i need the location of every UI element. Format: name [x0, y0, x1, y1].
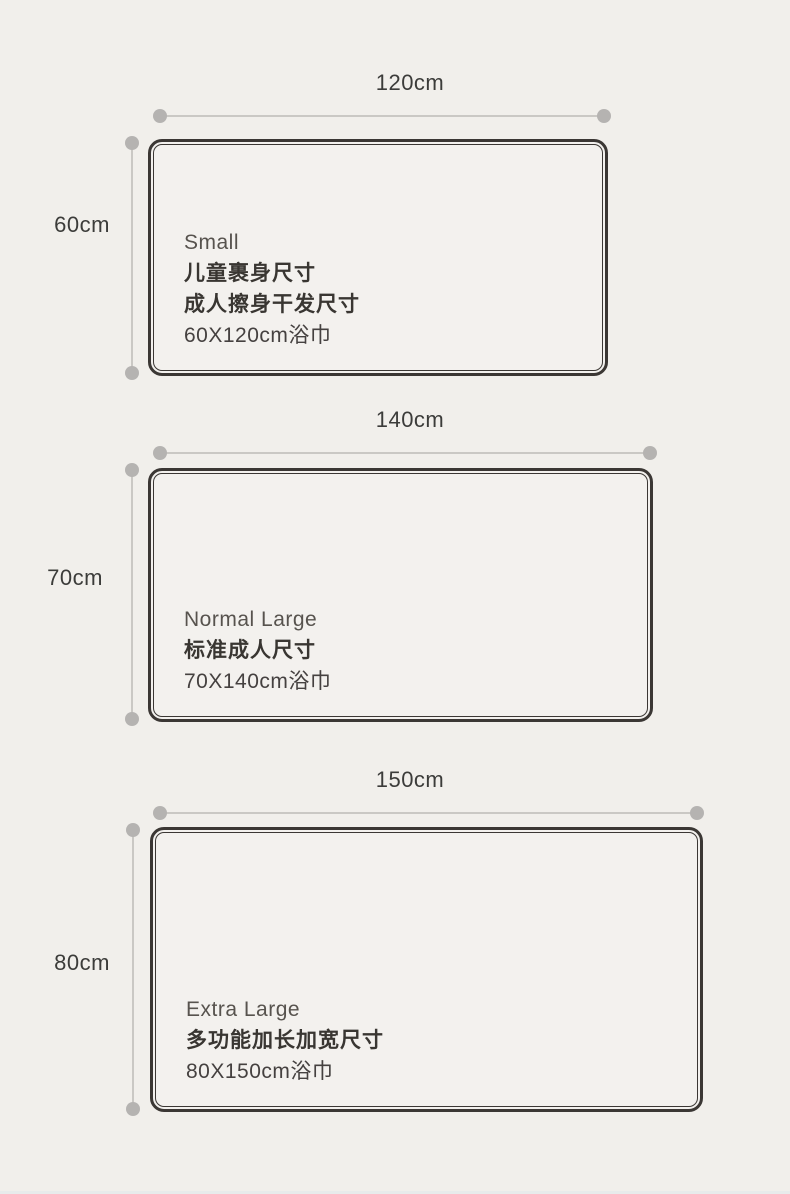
dimension-dot [125, 366, 139, 380]
dimension-dot [125, 463, 139, 477]
towel-size-text: 60X120cm浴巾 [184, 320, 360, 351]
towel-description-line: 标准成人尺寸 [184, 635, 331, 666]
towel-info-normal: Normal Large 标准成人尺寸 70X140cm浴巾 [184, 604, 331, 697]
towel-size-text: 80X150cm浴巾 [186, 1056, 384, 1087]
towel-outline-extra: Extra Large 多功能加长加宽尺寸 80X150cm浴巾 [150, 827, 703, 1112]
height-dimension-line-small [131, 143, 133, 373]
width-dimension-label-small: 120cm [340, 70, 480, 96]
width-dimension-label-extra: 150cm [340, 767, 480, 793]
dimension-dot [126, 823, 140, 837]
towel-outline-small: Small 儿童裹身尺寸 成人擦身干发尺寸 60X120cm浴巾 [148, 139, 608, 376]
width-dimension-line-normal [160, 452, 650, 454]
width-dimension-line-extra [160, 812, 697, 814]
towel-name-en: Small [184, 227, 360, 258]
towel-name-en: Normal Large [184, 604, 331, 635]
towel-outline-normal: Normal Large 标准成人尺寸 70X140cm浴巾 [148, 468, 653, 722]
height-dimension-label-normal: 70cm [29, 565, 121, 591]
dimension-dot [597, 109, 611, 123]
dimension-dot [126, 1102, 140, 1116]
width-dimension-line-small [160, 115, 604, 117]
height-dimension-line-normal [131, 470, 133, 719]
height-dimension-label-small: 60cm [36, 212, 128, 238]
towel-size-chart: 120cm 60cm Small 儿童裹身尺寸 成人擦身干发尺寸 60X120c… [0, 0, 790, 1194]
width-dimension-label-normal: 140cm [340, 407, 480, 433]
towel-description-line: 成人擦身干发尺寸 [184, 289, 360, 320]
height-dimension-label-extra: 80cm [36, 950, 128, 976]
towel-description-line: 多功能加长加宽尺寸 [186, 1025, 384, 1056]
dimension-dot [125, 712, 139, 726]
dimension-dot [643, 446, 657, 460]
dimension-dot [153, 109, 167, 123]
towel-info-extra: Extra Large 多功能加长加宽尺寸 80X150cm浴巾 [186, 994, 384, 1087]
towel-name-en: Extra Large [186, 994, 384, 1025]
towel-size-text: 70X140cm浴巾 [184, 666, 331, 697]
dimension-dot [153, 446, 167, 460]
dimension-dot [690, 806, 704, 820]
dimension-dot [125, 136, 139, 150]
towel-description-line: 儿童裹身尺寸 [184, 258, 360, 289]
dimension-dot [153, 806, 167, 820]
towel-info-small: Small 儿童裹身尺寸 成人擦身干发尺寸 60X120cm浴巾 [184, 227, 360, 351]
height-dimension-line-extra [132, 830, 134, 1109]
